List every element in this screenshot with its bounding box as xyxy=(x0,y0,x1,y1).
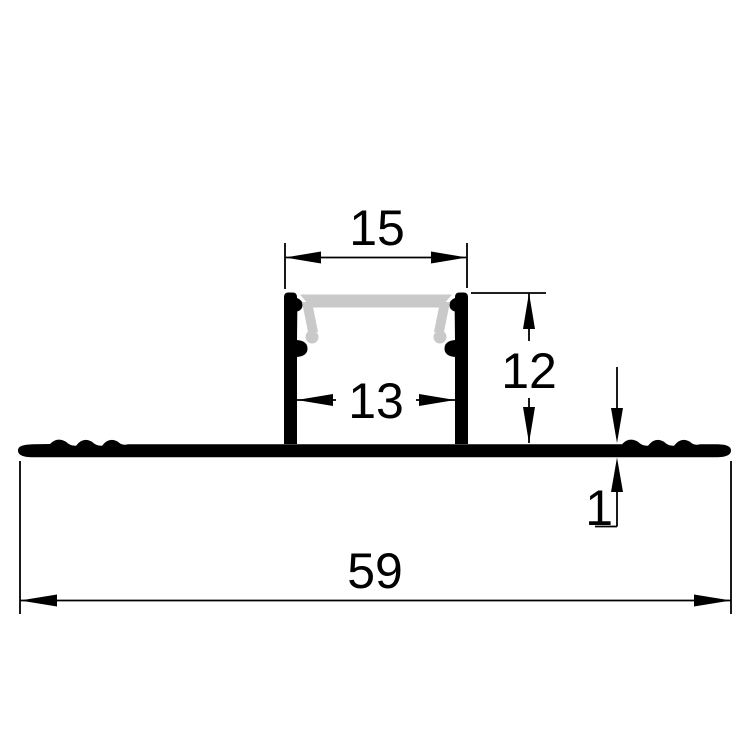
arrowhead-right xyxy=(419,394,455,406)
dim-overall-width-label: 59 xyxy=(347,543,403,599)
technical-drawing-page: 15 13 12 1 xyxy=(0,0,750,750)
dim-height-label: 12 xyxy=(501,343,557,399)
dim-height: 12 xyxy=(471,293,557,443)
arrowhead-down xyxy=(523,407,535,443)
arrowhead-down xyxy=(611,408,623,443)
arrowhead-up xyxy=(523,293,535,329)
profile-right-wall xyxy=(445,293,469,445)
dim-top-opening: 15 xyxy=(285,200,467,289)
arrowhead-left xyxy=(297,394,333,406)
arrowhead-right xyxy=(431,252,467,264)
dim-inner-width: 13 xyxy=(297,373,455,429)
diffuser-left-foot xyxy=(306,331,319,344)
dim-top-opening-label: 15 xyxy=(349,200,405,256)
profile-left-wall xyxy=(284,293,308,445)
arrowhead-left xyxy=(20,595,57,607)
arrowhead-left xyxy=(285,252,321,264)
diffuser-right-foot xyxy=(434,331,447,344)
dim-flange-thickness-label: 1 xyxy=(585,480,613,536)
arrowhead-right xyxy=(694,595,731,607)
profile-base-flange xyxy=(18,440,731,458)
diffuser-top-slab xyxy=(300,295,452,308)
diffuser-cover xyxy=(300,295,452,344)
dim-inner-width-label: 13 xyxy=(348,373,404,429)
technical-drawing-canvas: 15 13 12 1 xyxy=(0,0,750,750)
dim-overall-width: 59 xyxy=(20,461,731,614)
